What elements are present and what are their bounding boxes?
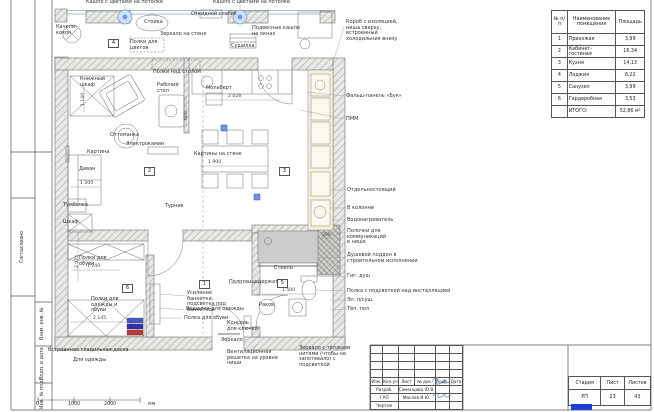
schedule-row-num: 2 xyxy=(552,46,568,58)
zone-bars xyxy=(127,318,143,335)
dim-600: 600 xyxy=(184,111,189,120)
annotation-hanger: Вешалка для одежды xyxy=(186,307,244,313)
schedule-row-num: 4 xyxy=(552,70,568,82)
label-pullup: Турник xyxy=(165,204,184,210)
shower-tray-shape xyxy=(258,231,318,263)
annotation-mirror: Зеркало xyxy=(221,338,243,344)
label-window-plants: Подвесные кашпо на окнах xyxy=(252,26,300,37)
annotation-ironing-board: Встроенная гладильная доска xyxy=(48,348,129,354)
drawing-sheet: Согласовано Взам. инв. № Подп. и дата Ин… xyxy=(0,0,654,412)
annotation-pmm: ПММ xyxy=(346,117,358,123)
scale-tick-2000: 2000 xyxy=(104,402,116,407)
schedule-row-name: Гардеробная xyxy=(567,94,616,106)
tb-sign-cell xyxy=(435,386,450,394)
tb-col-koluch: Кол.уч xyxy=(382,378,398,386)
label-top-plants-left: Кашпо с цветами на потолке xyxy=(86,0,163,6)
tb-col-podp: Подп. xyxy=(435,378,450,386)
room-tag-bath: 5 xyxy=(277,279,288,288)
dim-2028: 2 028 xyxy=(228,94,241,99)
titleblock-left-grid: Изм. Кол.уч Лист № док. Подп. Дата Разра… xyxy=(370,345,463,410)
label-flower-shelves: Полки для цветов xyxy=(130,40,164,51)
tb-role: Разраб. xyxy=(371,386,399,394)
label-swing: Качели-кокон xyxy=(56,25,82,36)
label-ottoman: Оттоманка xyxy=(110,133,139,139)
label-glass: Стекло xyxy=(274,266,293,272)
titleblock-row: ГАП Маслов И.Ю. xyxy=(371,394,463,402)
easel-shape xyxy=(206,93,222,105)
scale-tick-1000: 1000 xyxy=(68,402,80,407)
annotation-shelf-light: Полка с подсветкой над инсталляцией xyxy=(347,289,450,295)
label-desk: Рабочий стол xyxy=(157,83,183,94)
annotation-shower-tray: Душевой поддон в строительном исполнении xyxy=(347,253,419,264)
tb-col-ndok: № док. xyxy=(415,378,436,386)
annotation-hyg-shower: Гиг. душ xyxy=(347,274,370,280)
titleblock-row: Чертил xyxy=(371,402,463,410)
schedule-row-name: Санузел xyxy=(567,82,616,94)
schedule-col-area: Площадь xyxy=(616,11,645,34)
schedule-row: 1 Прихожая 3,99 xyxy=(552,34,645,46)
schedule-header-row: № п/п Наименование помещения Площадь xyxy=(552,11,645,34)
dim-1740: 1 740 xyxy=(87,264,100,269)
tb-sign-cell xyxy=(435,402,450,410)
label-wall-mirror: Зеркало на стене xyxy=(160,32,206,38)
schedule-row-area: 16,34 xyxy=(616,46,645,58)
kitchen-tall-column xyxy=(308,70,333,230)
room-tag-wardrobe: 6 xyxy=(122,284,133,293)
schedule-row-name: Прихожая xyxy=(567,34,616,46)
schedule-row-num: 6 xyxy=(552,94,568,106)
sheets-value: 43 xyxy=(624,390,650,406)
scale-unit: мм xyxy=(148,402,155,407)
scale-bar xyxy=(38,397,140,403)
annotation-towel-holder: Полотенцедержатель xyxy=(229,280,261,286)
room-tag-hall: 1 xyxy=(199,280,210,289)
annotation-in-column: В колонне xyxy=(347,206,374,212)
wc-bowl xyxy=(302,280,316,300)
schedule-row-num: 1 xyxy=(552,34,568,46)
label-top-plants-right: Кашпо с цветами на потолке xyxy=(213,0,290,6)
tb-name: Семенцова Ю.В. xyxy=(398,386,435,394)
room-schedule-table: № п/п Наименование помещения Площадь 1 П… xyxy=(551,10,645,118)
label-stand: Стойка xyxy=(144,20,163,26)
annotation-towel-dryer: Эл. п/суш. xyxy=(347,298,374,304)
side-stamp-replace-inv: Взам. инв. № xyxy=(40,307,45,340)
fireplace-shape xyxy=(148,147,178,154)
label-fireplace: Электрокамин xyxy=(126,142,164,148)
annotation-water-heater: Водонагреватель xyxy=(347,218,393,224)
schedule-row-num: 3 xyxy=(552,58,568,70)
room-tag-study: 2 xyxy=(144,167,155,176)
schedule-row: 5 Санузел 3,99 xyxy=(552,82,645,94)
annotation-panel: Фальш-панель «Бук» xyxy=(346,94,402,100)
dim-1900: 1 900 xyxy=(208,160,221,165)
label-bath-sink: Раков. xyxy=(259,303,276,309)
label-dryer: Сушилка xyxy=(231,44,255,50)
annotation-freestanding: Отдельностоящий xyxy=(347,188,396,194)
label-shelves-above-desk: Полки над столом xyxy=(153,70,201,76)
room-tag-kitchen: 3 xyxy=(279,167,290,176)
dim-1500: 1 500 xyxy=(282,288,295,293)
schedule-total-value: 52,86 м² xyxy=(616,106,645,118)
desk-shape xyxy=(159,95,184,127)
tb-role: Чертил xyxy=(371,402,399,410)
titleblock-header-row: Изм. Кол.уч Лист № док. Подп. Дата xyxy=(371,378,463,386)
annotation-niche-shelves: Полочки для коммуникаций в нише xyxy=(347,229,387,246)
schedule-row-area: 3,99 xyxy=(616,34,645,46)
annotation-shoe-shelf: Полка для обуви xyxy=(184,316,228,322)
label-sofa: Диван xyxy=(79,167,95,173)
tb-role: ГАП xyxy=(371,394,399,402)
label-easel: Мольберт xyxy=(206,86,232,92)
annotation-warm-mirror: Зеркало с тёплыми нитями (чтобы не запот… xyxy=(299,346,363,368)
annotation-vent-grille: Вентиляционная решетка на уровне ниши xyxy=(227,350,285,367)
tb-sign-cell xyxy=(435,394,450,402)
stage-label: Стадия xyxy=(569,377,601,390)
titleblock-row: Разраб. Семенцова Ю.В. xyxy=(371,386,463,394)
schedule-row-num: 5 xyxy=(552,82,568,94)
schedule-total-label: ИТОГО: xyxy=(567,106,616,118)
schedule-row-name: Кухня xyxy=(567,58,616,70)
logo-block xyxy=(571,404,592,410)
tb-name: Маслов И.Ю. xyxy=(398,394,435,402)
label-fold-table: Откидной столик xyxy=(191,12,237,18)
titleblock-stage-table: Стадия Лист Листов РП 23 43 xyxy=(568,376,651,406)
label-closet: Шкаф xyxy=(63,220,79,226)
label-paintings-wall: Картины на стене xyxy=(194,152,242,158)
schedule-total-row: ИТОГО: 52,86 м² xyxy=(552,106,645,118)
label-clothes-shelves: Полки для одежды и обуви xyxy=(91,297,127,314)
dim-1200: 1 200 xyxy=(80,181,93,186)
dim-200: 200 xyxy=(322,233,331,238)
annotation-for-clothes: Для одежды xyxy=(73,358,106,364)
annotation-keys-console: Консоль для ключей xyxy=(227,321,259,332)
schedule-row: 2 Кабинет-гостиная 16,34 xyxy=(552,46,645,58)
schedule-row-area: 14,13 xyxy=(616,58,645,70)
schedule-row-name: Лоджия xyxy=(567,70,616,82)
stage-header-row: Стадия Лист Листов xyxy=(569,377,651,390)
sheet-label: Лист xyxy=(601,377,625,390)
schedule-total-spacer xyxy=(552,106,568,118)
tb-name xyxy=(398,402,435,410)
sheets-label: Листов xyxy=(624,377,650,390)
label-painting: Картина xyxy=(87,150,109,156)
side-stamp-inv-original: Инв. № подл. xyxy=(40,376,45,409)
tb-col-izm: Изм. xyxy=(371,378,383,386)
sheet-value: 23 xyxy=(601,390,625,406)
scale-tick-0: 0 xyxy=(36,402,39,407)
annotation-fridge-box: Короб с изоляцией, ниша сверху, встроенн… xyxy=(346,20,408,42)
schedule-row-area: 8,22 xyxy=(616,70,645,82)
desk-chair xyxy=(165,105,177,117)
tb-col-data: Дата xyxy=(450,378,463,386)
annotation-warm-floor: Тёп. пол xyxy=(347,307,369,313)
washing-machine xyxy=(289,299,306,316)
schedule-row-area: 3,53 xyxy=(616,94,645,106)
schedule-row-name: Кабинет-гостиная xyxy=(567,46,616,58)
dining-table xyxy=(202,146,268,172)
schedule-row: 3 Кухня 14,13 xyxy=(552,58,645,70)
schedule-row: 4 Лоджия 8,22 xyxy=(552,70,645,82)
schedule-col-name: Наименование помещения xyxy=(567,11,616,34)
room-tag-loggia: 4 xyxy=(108,39,119,48)
side-stamp-agreed: Согласовано xyxy=(20,231,25,263)
tb-col-list: Лист xyxy=(398,378,414,386)
dim-2075: 2 075 xyxy=(75,255,80,268)
label-bookcase: Книжный шкаф xyxy=(80,77,112,88)
dim-2145: 2 145 xyxy=(93,316,106,321)
schedule-row: 6 Гардеробная 3,53 xyxy=(552,94,645,106)
schedule-col-num: № п/п xyxy=(552,11,568,34)
schedule-row-area: 3,99 xyxy=(616,82,645,94)
dim-1140: 1 140 xyxy=(81,93,86,106)
label-nightstand: Тумбочка xyxy=(63,203,88,209)
